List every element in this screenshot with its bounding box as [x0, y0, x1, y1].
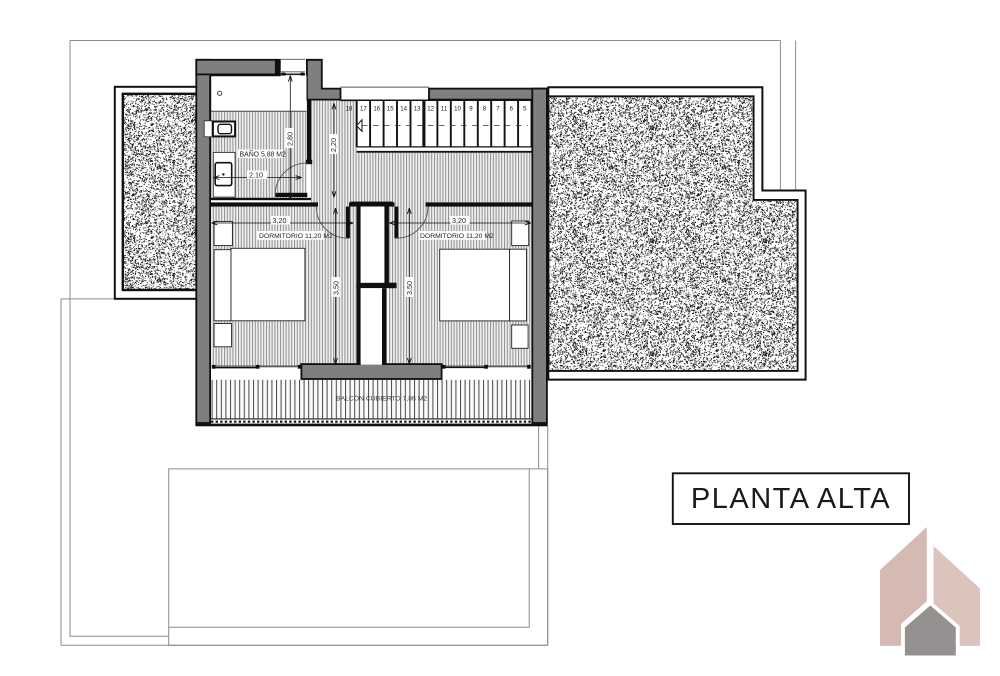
- svg-text:7: 7: [496, 106, 500, 113]
- svg-text:2,80: 2,80: [286, 132, 295, 146]
- svg-text:2,20: 2,20: [329, 138, 338, 152]
- svg-text:3,50: 3,50: [405, 281, 414, 295]
- svg-text:3,20: 3,20: [273, 216, 287, 225]
- svg-text:BALCÓN CUBIERTO 7,86 M2: BALCÓN CUBIERTO 7,86 M2: [336, 394, 427, 403]
- svg-text:10: 10: [454, 106, 461, 113]
- svg-text:14: 14: [400, 106, 407, 113]
- svg-text:12: 12: [427, 106, 434, 113]
- svg-text:15: 15: [387, 106, 394, 113]
- svg-text:18: 18: [346, 106, 353, 113]
- svg-text:DORMITORIO 11,20 M2: DORMITORIO 11,20 M2: [420, 233, 494, 240]
- svg-text:3,50: 3,50: [331, 281, 340, 295]
- svg-text:13: 13: [414, 106, 421, 113]
- svg-text:BAÑO 5,88 M2: BAÑO 5,88 M2: [240, 150, 287, 159]
- svg-text:2,10: 2,10: [249, 171, 263, 180]
- svg-text:17: 17: [360, 106, 367, 113]
- svg-text:DORMITORIO 11,20 M2: DORMITORIO 11,20 M2: [259, 233, 333, 240]
- svg-text:11: 11: [441, 106, 448, 113]
- svg-text:16: 16: [373, 106, 380, 113]
- svg-text:3,20: 3,20: [452, 216, 466, 225]
- svg-text:PLANTA ALTA: PLANTA ALTA: [691, 483, 891, 515]
- svg-text:8: 8: [483, 106, 487, 113]
